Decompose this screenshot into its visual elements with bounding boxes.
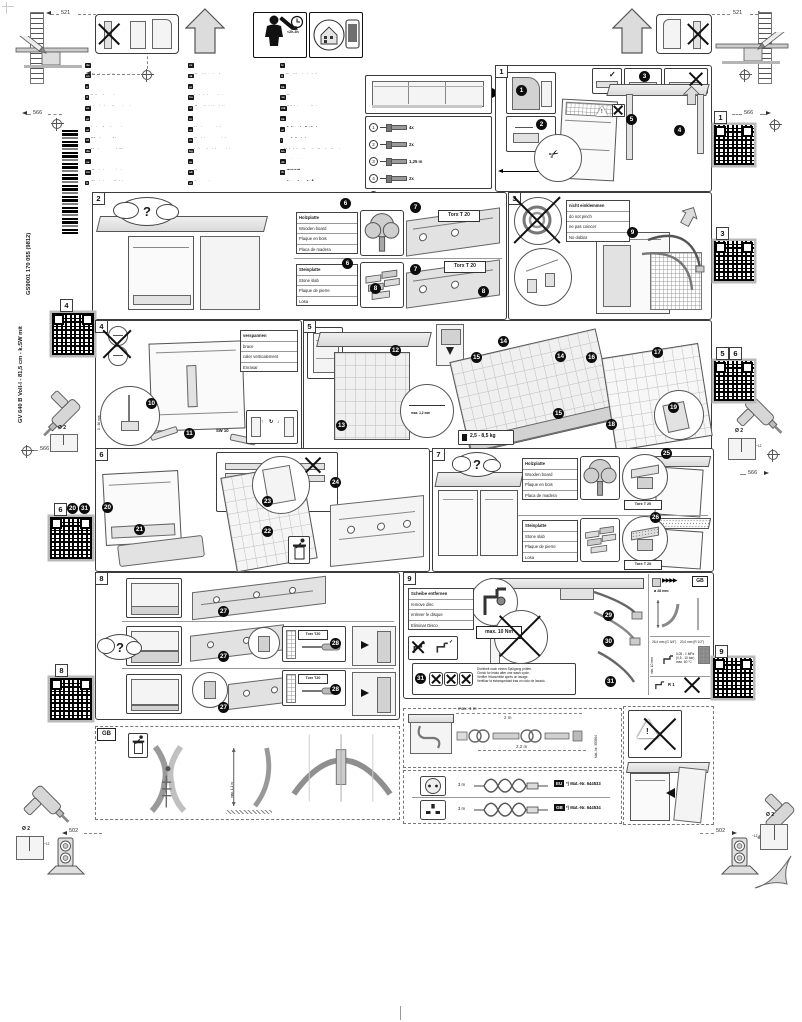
language-code-badge: kk [280, 84, 286, 89]
language-entry: roInstrucţiuni de montaj Disponibile la … [188, 138, 276, 149]
gap-label: max. 1,2 mm [411, 411, 430, 415]
qr-section-label: 4 [60, 299, 73, 312]
screw-icon [389, 142, 407, 147]
stone-slab-icon [581, 519, 619, 561]
language-code-badge: bg [188, 149, 194, 154]
cross-icon [412, 641, 424, 653]
leak-check-text: Dichtheit nach einem Spülgang prüfen.Che… [477, 667, 573, 683]
part-number: 3 [369, 157, 378, 166]
step-badge: 17 [652, 347, 663, 358]
language-entry: skMontážny návod Dostupné cez zákaznícky… [188, 74, 276, 85]
qr-code-5-6 [714, 361, 754, 401]
cross-icon [512, 195, 562, 245]
part-quantity: 4x [409, 125, 414, 130]
language-code-badge: pl [188, 84, 193, 89]
torx-size-label: Torx T 20 [444, 261, 486, 273]
duration-label: <2h-3h [287, 30, 299, 34]
qr-code-8 [50, 678, 92, 720]
scissors-icon: ✂ [546, 145, 562, 162]
divider [650, 676, 710, 677]
language-code-badge: ru [188, 159, 193, 164]
language-entry: srUputstvo za montažu Dostupno preko kor… [188, 127, 276, 138]
hoses-icon [636, 206, 708, 310]
cabinet-side [626, 94, 633, 160]
page-curl-icon [752, 854, 794, 890]
language-code-badge: cs [188, 63, 194, 68]
qr-section-label: 5 [716, 347, 729, 360]
language-entry: sqUdhëzime montimi I disponueshëm përmes… [280, 95, 362, 106]
step-6-label: 6 [95, 448, 108, 461]
language-code-badge: sk [188, 74, 194, 79]
drill-crosshair-icon [770, 120, 780, 130]
language-entry: slNavodila za montažo Na voljo pri servi… [188, 106, 276, 117]
clip-detail-circle [248, 627, 280, 659]
step-badge: 9 [627, 227, 638, 238]
step-badge: 7 [410, 202, 421, 213]
part-row: 2 2x [369, 136, 425, 153]
language-entry: bgУказание за монтаж Предлага се чрез се… [188, 149, 276, 160]
language-entry: daMonteringsvejledning Fås via kundeserv… [85, 149, 185, 160]
language-code-badge: hr [188, 116, 193, 121]
region-badge: GB [554, 804, 565, 811]
cabinet-front [438, 490, 478, 556]
base-frame [330, 495, 424, 567]
arrow-up-icon [683, 86, 700, 105]
language-list-col3: lvMontāžas instrukcija Pieejama klientu … [280, 63, 362, 181]
step-badge: 2 [536, 119, 547, 130]
print-code: GS9001 170 055 (9812) [26, 203, 32, 295]
arrow-up-icon [185, 8, 225, 54]
step-badge: 27 [218, 606, 229, 617]
drill-hole-block [728, 438, 756, 460]
tree-icon-box [580, 456, 620, 500]
eu-socket-icon [420, 776, 446, 796]
drill-hole-block [16, 836, 44, 860]
language-code-badge: lt [280, 74, 284, 79]
step-badge: 3 [639, 71, 650, 82]
tap-icon [662, 654, 674, 666]
corner-detail-circle [654, 390, 704, 440]
warning-inset: ! [628, 710, 682, 758]
language-code-badge: ro [188, 138, 193, 143]
language-code-badge: el [85, 127, 90, 132]
cabinet-front [480, 490, 518, 556]
wood-label-box: HolzplatteWooden board Plaque en boisPla… [296, 212, 358, 254]
divider [122, 668, 394, 669]
language-entry: ltMontavimo instrukcija Galima gauti iš … [280, 74, 362, 85]
language-code-badge: da [85, 149, 91, 154]
language-code-badge: sr [188, 127, 193, 132]
language-code-badge: fr [85, 84, 89, 89]
qr-code-9 [713, 658, 753, 698]
hose-diameter-label: ø 28 mm [654, 589, 669, 593]
language-entry: kaმონტაჟის ინსტრუქცია ხელმისაწვდომია სერ… [280, 116, 362, 127]
part-row: 1 4x [369, 119, 425, 136]
language-entry: enInstallation instructions Available fr… [85, 74, 185, 85]
language-code-badge: uk [188, 170, 194, 175]
language-entry: etPaigaldusjuhend Saadaval klienditeenin… [188, 181, 276, 192]
counter-clamp-detail-circle [622, 454, 668, 500]
grid-block-icon [698, 646, 710, 664]
stone-label-box: SteinplatteStone slab Plaque de pierreLo… [522, 520, 578, 562]
language-entry: nlMontagevoorschrift Verkrijgbaar via de… [85, 138, 185, 149]
step-badge: 13 [336, 420, 347, 431]
torx-size-label: Torx T20 [298, 674, 328, 684]
language-entry: hrUpute za montažu Dostupno preko servis… [188, 116, 276, 127]
tree-icon [581, 457, 619, 499]
language-entry: ptInstruções de montagem Podem ser adqui… [85, 116, 185, 127]
connection-size-label: 20,0 mm (R 1/2") [680, 640, 706, 644]
step-badge: 14 [498, 336, 509, 347]
step-badge: 25 [661, 448, 672, 459]
step-badge: 11 [184, 428, 195, 439]
step-badge: 15 [471, 352, 482, 363]
question-cloud: ? [118, 197, 176, 226]
step-badge: 6 [340, 198, 351, 209]
qr-section-label: 1 [714, 111, 727, 124]
language-entry: ko설치 설명서 고객 서비스 센터에서 제공 [280, 149, 362, 160]
step-badge: 15 [553, 408, 564, 419]
screw-icon [389, 159, 407, 164]
step-badge: 1 [516, 85, 527, 96]
step-badge: 12 [390, 345, 401, 356]
step-badge: 18 [606, 419, 617, 430]
language-entry: deMontageanleitung Über Kundendienst erh… [85, 63, 185, 74]
torx-size-label: Torx T 20 [624, 500, 662, 510]
language-entry: huSzerelési útmutató A vevőszolgálatnál … [188, 95, 276, 106]
stone-slab-icon [361, 263, 403, 307]
wood-label-box: HolzplatteWooden board Plaque en boisPla… [522, 458, 578, 500]
cross-icon [305, 457, 321, 473]
spec-icon [652, 578, 661, 587]
step-badge: 24 [330, 477, 341, 488]
hose-dim-label: max. 1 m [458, 706, 477, 711]
language-code-badge: lv [280, 63, 285, 68]
tap-icon [435, 641, 449, 655]
step-badge: 31 [605, 676, 616, 687]
language-code-badge: hu [188, 95, 194, 100]
language-entry: esInstrucciones de montaje Disponible a … [85, 106, 185, 117]
drill-depth-label: ~12 [752, 834, 757, 838]
drill-crosshair-icon [768, 450, 778, 460]
hose-dim-label: 2 m [504, 715, 512, 720]
cut-straps-detail-circle: ✂ [534, 134, 582, 182]
cross-icon [613, 105, 622, 114]
torx-size-label: Torx T 20 [438, 210, 480, 222]
plinth-corner-pic [352, 672, 396, 716]
language-list-col2: csMontážní návod K dispozici přes zákazn… [188, 63, 276, 191]
cabinet-front-preview [365, 75, 492, 114]
mark-worktop-pencil-icon [712, 32, 792, 66]
language-code-badge: sl [188, 106, 193, 111]
step-7-label: 7 [432, 448, 445, 461]
step-9-label: 9 [403, 572, 416, 585]
step-badge: 5 [626, 114, 637, 125]
part-quantity: 1,25 m [409, 159, 422, 164]
language-entry: ukІнструкція з монтажу Можна отримати че… [188, 170, 276, 181]
drain-height-diagram [654, 596, 706, 632]
fast-forward-icon: ▶▶▶▶ [662, 577, 676, 584]
language-code-badge: es [85, 106, 91, 111]
dishwasher-front [128, 236, 194, 310]
step-badge: 28 [330, 684, 341, 695]
language-entry: noMonteringsveiledning Kan fås hos kunde… [85, 170, 185, 181]
gb-max-height-label: max. 1,1 m [230, 758, 234, 798]
part-number: 4 [369, 174, 378, 183]
bricks-icon-box [360, 262, 404, 308]
divider [412, 797, 610, 798]
cable-length-label: 3 m [458, 782, 465, 787]
step-badge: 6 [342, 258, 353, 269]
phone-scan-icon [310, 13, 362, 57]
tap-icon [654, 680, 665, 691]
part-number: 1 [369, 123, 378, 132]
cable-coil-icon [472, 778, 550, 794]
part-row: 4 2x [369, 170, 425, 187]
cross-icon [643, 715, 677, 753]
step-badge: 4 [674, 125, 685, 136]
stone-label-box: SteinplatteStone slab Plaque de pierreLo… [296, 264, 358, 306]
model-code: GV 640 B Voll-I - 81,5 cm - k.SW mit [18, 295, 24, 423]
qr-code-3 [714, 241, 754, 281]
hose-dim-label: 2,2 m [516, 744, 527, 749]
language-entry: itIstruzioni per il montaggio Disponibil… [85, 95, 185, 106]
language-list-col1: deMontageanleitung Über Kundendienst erh… [85, 63, 185, 191]
step-badge: 16 [586, 352, 597, 363]
divider [650, 636, 710, 637]
check-icon: ✓ [609, 70, 616, 79]
step-badge: 10 [146, 398, 157, 409]
drill-hole-block [760, 824, 788, 850]
drill-depth-label: ~12 [756, 444, 761, 448]
region-badge: EU [554, 780, 564, 787]
step-badge: 21 [134, 524, 145, 535]
insert-arrow-icon [666, 788, 675, 798]
language-code-badge: ka [280, 116, 286, 121]
uk-socket-icon [420, 800, 446, 820]
flow-check-box: ✓ [408, 636, 458, 660]
language-entry: thคำแนะนำการติดตั้ง มีให้บริการผ่านศูนย์… [280, 170, 362, 181]
part-quantity: 2x [409, 176, 414, 181]
language-code-badge: sq [280, 95, 286, 100]
weight-range-label: 2,5 - 8,5 kg [470, 433, 496, 439]
hardware-parts-box: 1 4x 2 2x 3 1,25 m 4 [365, 116, 492, 189]
dishwasher-side [148, 340, 245, 431]
wrong-panel-types-box-right [656, 14, 712, 54]
thread-size-label: R 1 [668, 682, 675, 687]
step-badge: 27 [218, 702, 229, 713]
screw-icon [389, 176, 407, 181]
language-entry: iMehr Infos über den Kundendienst More d… [280, 138, 362, 149]
drill-crosshair-icon [52, 119, 62, 129]
language-entry: mkУпатство за монтажа Достапно преку сер… [280, 106, 362, 117]
cable-length-label: 3 m [458, 806, 465, 811]
fold-mark [400, 1006, 401, 1020]
step-badge: 26 [650, 512, 661, 523]
warning-mark: ! [601, 109, 603, 115]
part-number: 2 [369, 140, 378, 149]
counter-clamp-detail-circle [622, 516, 668, 562]
step-badge: 30 [603, 636, 614, 647]
language-code-badge: th [280, 170, 285, 175]
hose-clip-detail-circle [514, 248, 572, 306]
gb-hose-over-kerb-icon [290, 734, 394, 802]
arrow-up-icon [612, 8, 652, 54]
mark-worktop-pencil-icon [12, 36, 92, 70]
cabinet-variant-3 [126, 674, 182, 714]
pressure-spec: 0,05 - 1 MPa (0,5 - 10 bar) max. 60 °C [676, 652, 694, 664]
language-code-badge: ar [280, 127, 285, 132]
qr-section-label: 6 [54, 503, 67, 516]
language-code-badge: sv [85, 159, 91, 164]
step1-detail-door [506, 72, 556, 114]
step-badge: 27 [218, 651, 229, 662]
hose-mat-number: Mat.-Nr. 350564 [594, 714, 598, 758]
mat-number-label: *) Mat.-Nr. 644534 [566, 805, 601, 810]
dispose-box [288, 536, 310, 564]
cross-icon [498, 614, 542, 658]
foot-adjust-circle [100, 386, 160, 446]
step-badge: 31 [415, 673, 426, 684]
worktop [316, 332, 432, 347]
language-entry: plInstrukcja montażu Dostępna w punktach… [188, 84, 276, 95]
question-cloud: ? [100, 634, 140, 660]
language-code-badge: de [85, 63, 91, 68]
check-icon: ✓ [449, 639, 453, 645]
divider [648, 574, 649, 695]
divider [294, 258, 502, 259]
language-code-badge: et [188, 181, 193, 186]
language-entry: elΟδηγίες τοποθέτησης Διατίθεται από την… [85, 127, 185, 138]
cross-icon [689, 72, 703, 86]
brace-label-box: verspannenbrace caler verticalementEnras… [240, 330, 298, 372]
cable-coil-icon [472, 802, 550, 818]
bricks-icon-box [580, 518, 620, 562]
part-quantity: 2x [409, 142, 414, 147]
step-5-label: 5 [303, 320, 316, 333]
step-badge: 22 [262, 526, 273, 537]
language-entry: frNotice de montage Disponible par le bi… [85, 84, 185, 95]
barcode [62, 130, 78, 234]
no-pinch-label-box: nicht einklemmendo not pinch ne pas coin… [566, 200, 630, 242]
step-badge: 29 [603, 610, 614, 621]
panel-weight-box: 2,5 - 8,5 kg [458, 430, 514, 445]
drill-crosshair-icon [22, 446, 32, 456]
qr-code-6 [50, 517, 92, 559]
hoses-connection-icon [588, 582, 646, 692]
drill-crosshair-icon [142, 70, 152, 80]
step-badge: 20 [102, 502, 113, 513]
leak-check-strip: 31 Dichtheit nach einem Spülgang prüfen.… [412, 663, 576, 695]
cabinet-variant-1 [126, 578, 182, 618]
divider [518, 515, 708, 516]
step-badge: 8 [370, 283, 381, 294]
step-badge: 23 [262, 496, 273, 507]
qr-section-label: 6 [729, 347, 742, 360]
qr-section-label: 8 [55, 664, 68, 677]
crop-mark [2, 6, 14, 7]
part-row: 3 1,25 m [369, 153, 425, 170]
language-entry: fiAsennusohje Saatavana huoltopalvelusta [85, 181, 185, 192]
language-entry: kkМонтаждау нұсқаулығы Сервистік қызмет … [280, 84, 362, 95]
qr-section-label: 9 [715, 645, 728, 658]
gap-detail-circle: max. 1,2 mm [400, 384, 454, 438]
drill-diameter-label: Ø 2 [735, 428, 743, 434]
pull-line [503, 171, 539, 172]
language-code-badge: nl [85, 138, 90, 143]
panel-corner-detail-circle [252, 456, 310, 514]
language-entry: ruИнструкция по монтажу Можно получить ч… [188, 159, 276, 170]
language-entry: csMontážní návod K dispozici přes zákazn… [188, 63, 276, 74]
language-code-badge: pt [85, 116, 90, 121]
cross-icon [687, 19, 709, 49]
mat-number-label: *) Mat.-Nr. 644533 [566, 781, 601, 786]
language-code-badge: i [280, 138, 283, 143]
language-code-badge: zh [280, 159, 286, 164]
wrench-size-label: SW 10 [216, 428, 229, 433]
cross-icon [684, 678, 700, 692]
step-8-label: 8 [95, 572, 108, 585]
language-code-badge: fi [85, 181, 89, 186]
cross-icon [98, 19, 120, 49]
question-cloud: ? [455, 452, 499, 477]
installation-manual-page: 521 566 GS9001 170 055 (9812) GV 640 B V… [0, 0, 802, 1022]
qr-step-range-badge: 20 [67, 503, 78, 514]
divider [122, 621, 394, 622]
step-badge: 7 [410, 264, 421, 275]
language-code-badge: mk [280, 106, 287, 111]
screw-icon [389, 125, 407, 130]
plinth-corner-pic [352, 626, 396, 666]
qr-code-1 [714, 125, 754, 165]
language-entry: zh安装说明 可通过客户服务部获取 [280, 159, 362, 170]
step-badge: 28 [330, 638, 341, 649]
crop-mark [6, 2, 7, 14]
drill-hole-block [50, 434, 78, 452]
language-entry: lvMontāžas instrukcija Pieejama klientu … [280, 63, 362, 74]
qr-section-label: 3 [716, 227, 729, 240]
qr-code-4 [52, 313, 94, 355]
hinge-part-icon [46, 836, 86, 876]
dishwasher-corner [102, 470, 182, 546]
language-code-badge: it [85, 95, 89, 100]
drill-diameter-label: Ø 2 [766, 812, 774, 818]
drill-diameter-label: Ø 2 [58, 425, 66, 431]
gb-ref-label: GB [692, 576, 708, 587]
level-sequence-box: ↑ ↻ ↓ [246, 410, 298, 444]
connection-size-label: 26,4 mm (G 3/4") [652, 640, 679, 644]
pliers-cut-icon [132, 740, 204, 816]
gb-section-label: GB [97, 728, 116, 741]
tree-icon [361, 211, 403, 255]
trash-person-icon [289, 537, 309, 563]
drill-diameter-label: Ø 2 [22, 826, 30, 832]
installer-time-box: <2h-3h [253, 12, 307, 58]
language-entry: svMonteringsanvisning Fås hos kundtjänst [85, 159, 185, 170]
language-code-badge: ko [280, 149, 286, 154]
cabinet-open [200, 236, 260, 310]
min-gap-label: min. 10 mm [650, 650, 654, 674]
remove-disc-label-box: Scheibe entfernenremove disc enlever le … [408, 588, 474, 630]
qr-step-range-badge: 31 [79, 503, 90, 514]
language-code-badge: no [85, 170, 91, 175]
wrong-panel-types-box [95, 14, 179, 54]
language-code-badge: en [85, 74, 91, 79]
qr-scan-phone-box [309, 12, 363, 58]
torx-size-label: Torx T 20 [624, 560, 662, 570]
language-entry: arتعليمات التركيب متوفرة لدى خدمة العملا… [280, 127, 362, 138]
step-badge: 14 [555, 351, 566, 362]
